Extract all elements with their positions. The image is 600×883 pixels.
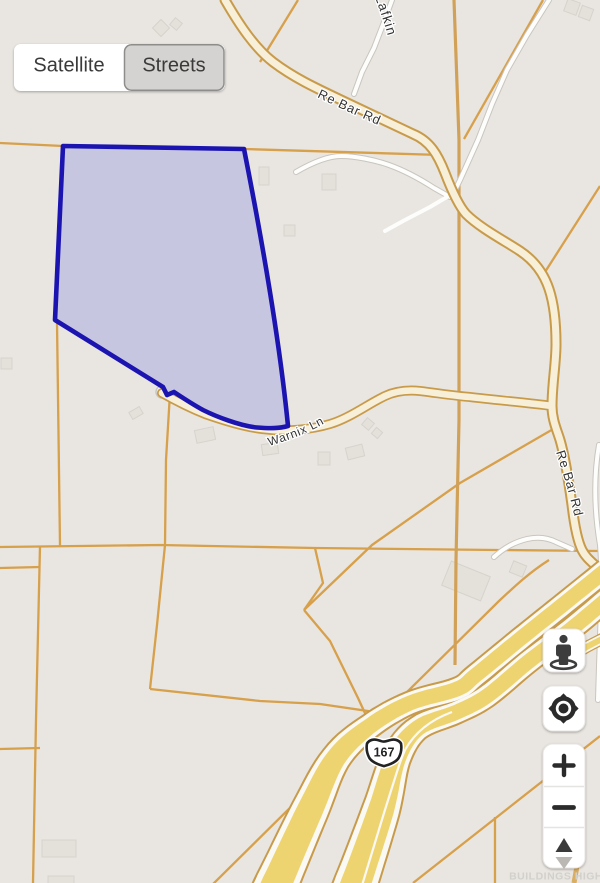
svg-text:BUILDINGS HIGH: BUILDINGS HIGH xyxy=(509,871,600,883)
svg-text:167: 167 xyxy=(374,746,395,760)
svg-text:Satellite: Satellite xyxy=(33,55,104,77)
svg-text:Streets: Streets xyxy=(142,55,205,77)
